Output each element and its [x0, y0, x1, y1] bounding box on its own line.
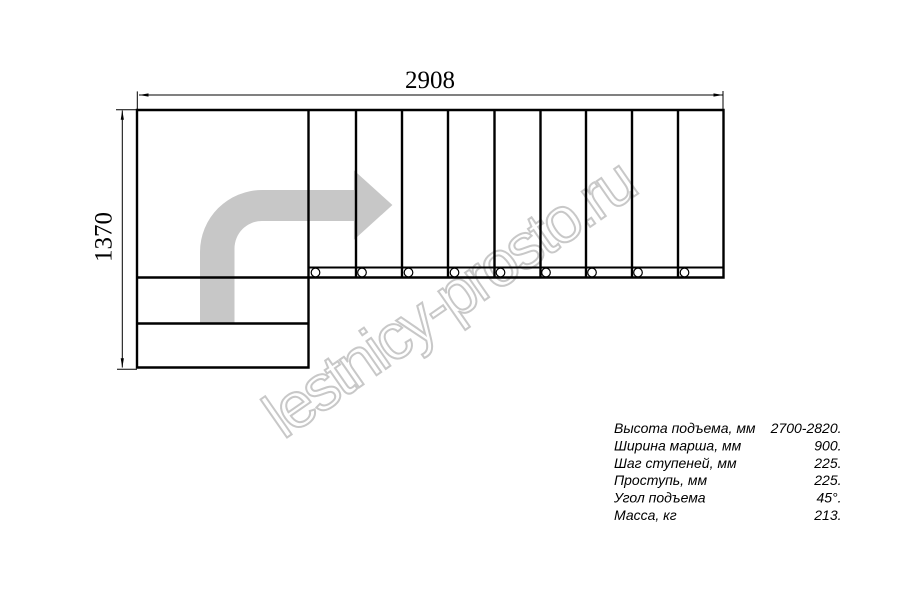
svg-text:Проступь, мм: Проступь, мм [614, 472, 708, 488]
svg-text:900.: 900. [814, 437, 841, 453]
svg-text:Высота подъема, мм: Высота подъема, мм [614, 420, 756, 436]
svg-text:225.: 225. [813, 455, 841, 471]
svg-text:1370: 1370 [91, 212, 118, 262]
svg-text:Шаг ступеней, мм: Шаг ступеней, мм [614, 455, 737, 471]
svg-text:45°.: 45°. [816, 490, 841, 506]
svg-text:2908: 2908 [405, 67, 455, 94]
svg-text:Масса, кг: Масса, кг [614, 507, 677, 523]
svg-text:Угол подъема: Угол подъема [613, 490, 706, 506]
svg-text:213.: 213. [813, 507, 841, 523]
svg-text:Ширина марша, мм: Ширина марша, мм [614, 437, 742, 453]
svg-text:225.: 225. [813, 472, 841, 488]
svg-text:2700-2820.: 2700-2820. [770, 420, 842, 436]
